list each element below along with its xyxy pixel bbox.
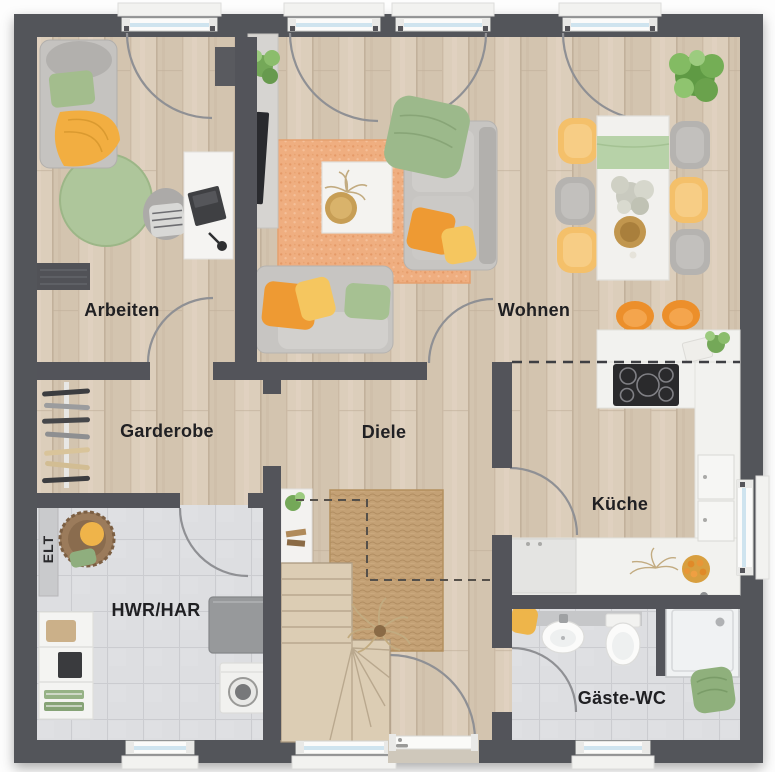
appliance-front: [510, 539, 576, 593]
daybed: [40, 40, 120, 168]
wall-wc-top: [512, 595, 740, 609]
room-label-elt: ELT: [40, 535, 56, 563]
room-label-kueche: Küche: [592, 494, 649, 514]
wall-kueche-left-lower: [492, 535, 512, 648]
floor-plan-svg: Arbeiten Wohnen Garderobe Diele Küche HW…: [0, 0, 775, 772]
laundry-basket: [60, 512, 114, 569]
wall-wc-left-stub: [492, 712, 512, 740]
heat-pump: [209, 597, 267, 653]
floor-plan-image: Arbeiten Wohnen Garderobe Diele Küche HW…: [0, 0, 775, 772]
washing-machine: [220, 663, 266, 713]
fern-plant: [669, 50, 724, 102]
wall-arbeiten-wohnen: [235, 37, 257, 362]
wall-hwr-top: [37, 493, 180, 508]
wall-kueche-left-upper: [492, 362, 512, 468]
coffee-table: [322, 162, 392, 233]
wall-mid-center: [213, 362, 427, 380]
room-label-hwr-har: HWR/HAR: [111, 600, 200, 620]
wall-garderobe-top-left: [37, 362, 150, 380]
office-chair: [143, 188, 189, 240]
window-kueche: [737, 476, 769, 579]
cushion-yellow: [440, 224, 478, 265]
toilet: [606, 614, 640, 665]
dining-table: [597, 116, 669, 280]
room-label-garderobe: Garderobe: [120, 421, 214, 441]
storage-shelf: [39, 612, 93, 719]
room-label-diele: Diele: [362, 422, 407, 442]
door-handle: [396, 744, 408, 748]
wall-garderobe-stub: [263, 380, 281, 394]
room-label-arbeiten: Arbeiten: [84, 300, 159, 320]
wall-hwr-top-stub: [248, 493, 281, 508]
induction-hob: [613, 364, 679, 406]
radiator: [37, 263, 90, 290]
desk: [184, 152, 233, 259]
room-label-gaeste-wc: Gäste-WC: [578, 688, 666, 708]
room-label-wohnen: Wohnen: [498, 300, 570, 320]
table-runner: [597, 136, 669, 169]
entrance-door: [388, 734, 479, 763]
cushion-green: [344, 283, 391, 321]
